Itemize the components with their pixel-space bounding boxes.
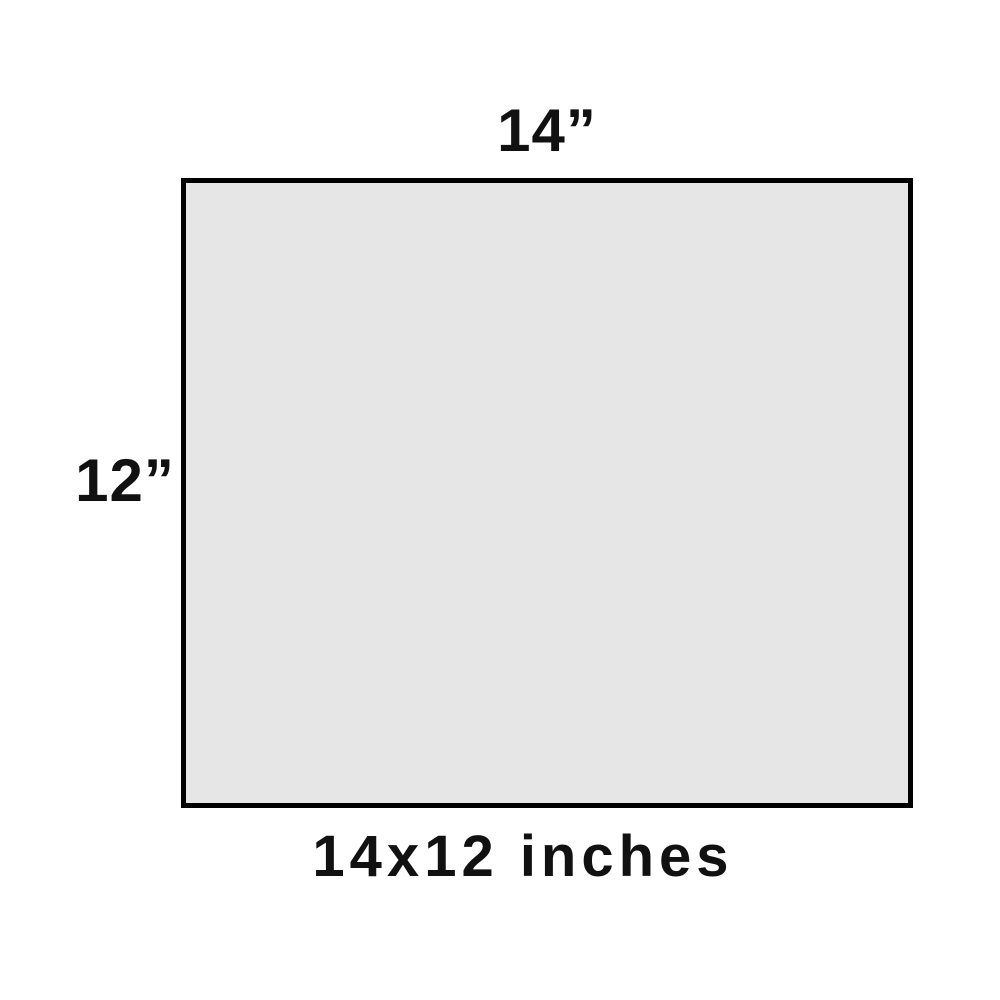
dimension-rectangle xyxy=(181,178,913,808)
diagram-canvas: 14” 12” 14x12 inches xyxy=(0,0,1000,1000)
width-dimension-label: 14” xyxy=(181,98,913,164)
size-caption: 14x12 inches xyxy=(157,824,889,891)
height-dimension-label: 12” xyxy=(55,448,195,514)
